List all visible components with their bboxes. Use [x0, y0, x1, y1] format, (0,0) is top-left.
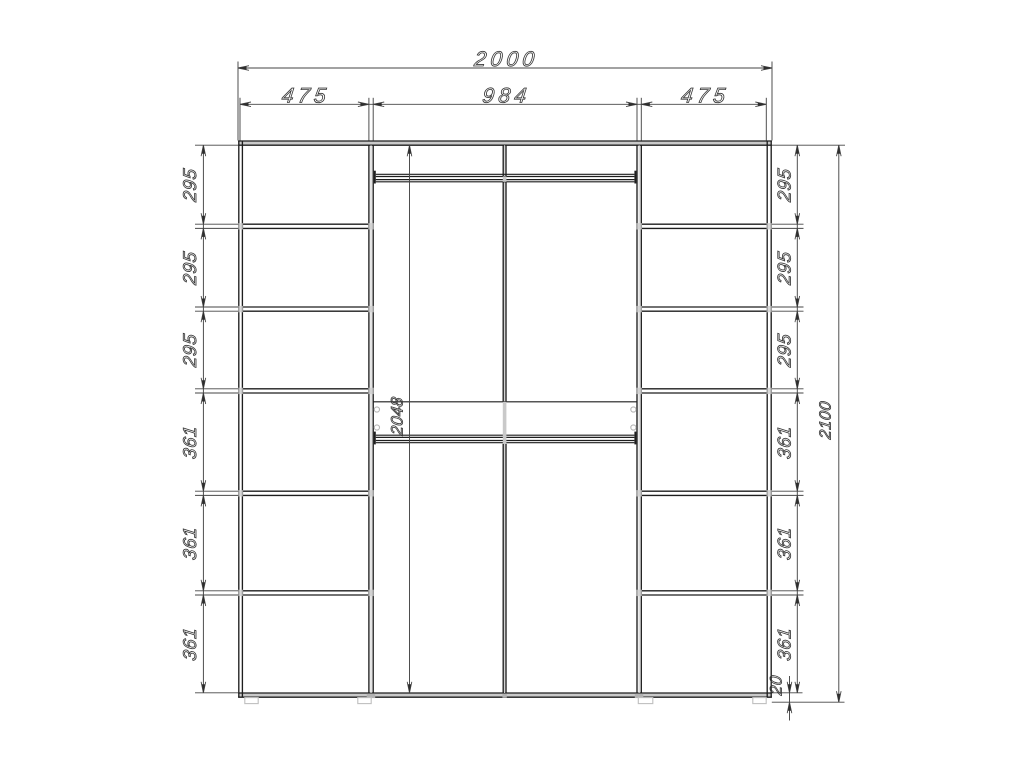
- svg-text:475: 475: [281, 84, 332, 107]
- svg-text:2048: 2048: [388, 395, 407, 437]
- svg-text:361: 361: [179, 626, 200, 662]
- svg-text:295: 295: [179, 167, 200, 204]
- svg-text:984: 984: [481, 84, 532, 107]
- svg-text:2100: 2100: [817, 400, 835, 441]
- svg-text:361: 361: [774, 525, 795, 561]
- svg-text:2000: 2000: [472, 48, 540, 71]
- svg-text:295: 295: [774, 250, 795, 287]
- svg-text:361: 361: [774, 626, 795, 662]
- svg-text:295: 295: [179, 250, 200, 287]
- svg-text:295: 295: [179, 332, 200, 369]
- svg-text:295: 295: [774, 167, 795, 204]
- svg-text:475: 475: [680, 84, 731, 107]
- svg-text:295: 295: [774, 332, 795, 369]
- svg-text:20: 20: [767, 674, 786, 697]
- svg-text:361: 361: [179, 424, 200, 460]
- svg-text:361: 361: [179, 525, 200, 561]
- svg-text:361: 361: [774, 424, 795, 460]
